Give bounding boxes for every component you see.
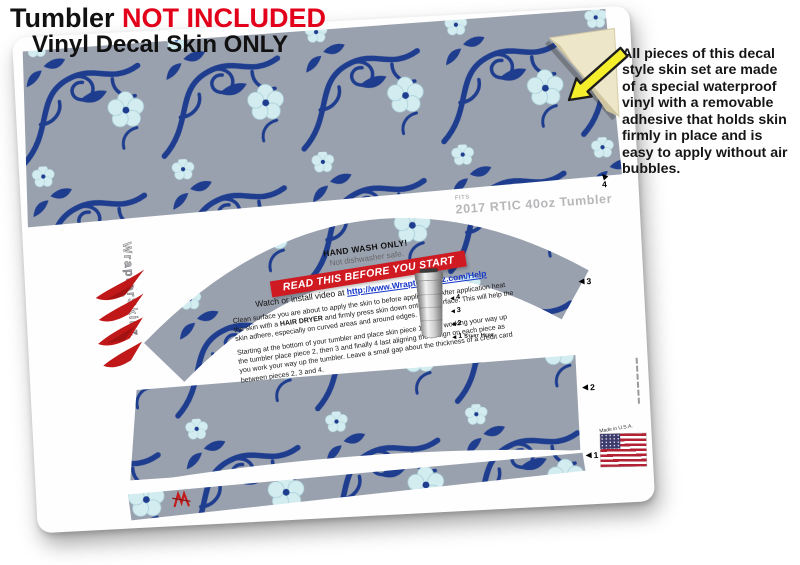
- header: Tumbler NOT INCLUDED Vinyl Decal Skin ON…: [10, 4, 326, 58]
- wraptorskinz-logo: WraptorSkinz: [93, 237, 153, 401]
- left-arrow-icon: [582, 384, 588, 390]
- tumbler-illustration: [413, 268, 449, 349]
- left-arrow-icon: [451, 309, 455, 313]
- left-arrow-icon: [585, 452, 591, 458]
- header-tumbler-text: Tumbler: [10, 3, 122, 33]
- callout-arrow-icon: [546, 40, 634, 108]
- flag-canton: [600, 434, 620, 449]
- piece-4-marker: 4: [601, 173, 608, 189]
- tumbler-guide-markers: 4 3 2 1Start Here: [450, 289, 494, 343]
- header-not-included-text: NOT INCLUDED: [122, 3, 326, 33]
- guide-number-1: 1: [458, 333, 462, 340]
- piece-1-number: 1: [593, 450, 598, 460]
- guide-marker-1: 1Start Here: [452, 328, 494, 343]
- left-arrow-icon: [578, 278, 584, 284]
- piece-1-marker: 1: [585, 450, 598, 461]
- adhesive-note: All pieces of this decal style skin set …: [622, 46, 794, 178]
- left-arrow-icon: [452, 335, 456, 339]
- guide-number-4: 4: [456, 294, 460, 301]
- start-here-label: Start Here: [464, 332, 494, 340]
- left-arrow-icon: [450, 296, 454, 300]
- piece-3-marker: 3: [578, 276, 591, 287]
- usa-flag: [600, 433, 647, 467]
- header-line2: Vinyl Decal Skin ONLY: [32, 32, 326, 57]
- guide-number-2: 2: [457, 320, 461, 327]
- product-image: Tumbler NOT INCLUDED Vinyl Decal Skin ON…: [0, 0, 800, 565]
- left-arrow-icon: [451, 322, 455, 326]
- piece-2-marker: 2: [582, 382, 595, 393]
- tumbler-body: [416, 280, 445, 339]
- piece-3-number: 3: [586, 276, 591, 286]
- piece-2-number: 2: [590, 382, 595, 392]
- guide-number-3: 3: [457, 307, 461, 314]
- piece-4-number: 4: [602, 179, 607, 189]
- logo-claw-marks: [94, 269, 149, 368]
- header-line1: Tumbler NOT INCLUDED: [10, 4, 326, 32]
